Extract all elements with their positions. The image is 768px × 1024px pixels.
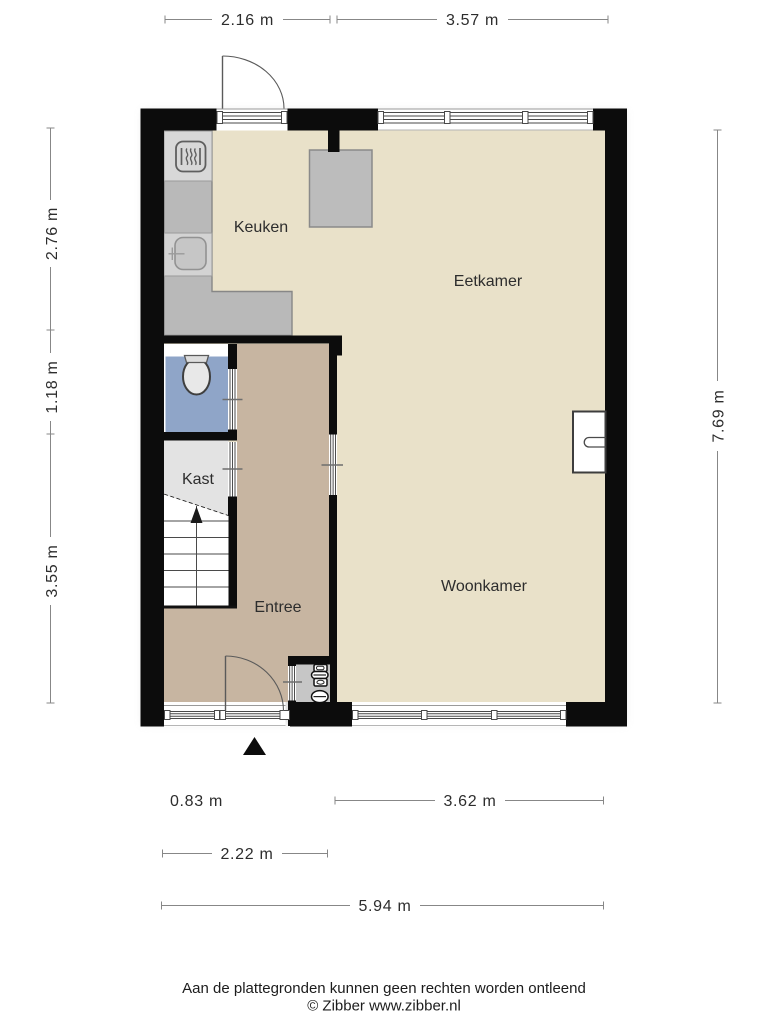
svg-text:Entree: Entree <box>254 599 301 616</box>
svg-text:3.62 m: 3.62 m <box>443 793 496 810</box>
svg-text:7.69 m: 7.69 m <box>711 389 728 442</box>
svg-text:Kast: Kast <box>182 471 215 488</box>
svg-text:Keuken: Keuken <box>234 219 288 236</box>
svg-text:2.22 m: 2.22 m <box>220 846 273 863</box>
svg-text:5.94 m: 5.94 m <box>358 898 411 915</box>
svg-text:1.18 m: 1.18 m <box>44 360 61 413</box>
svg-text:3.55 m: 3.55 m <box>44 544 61 597</box>
svg-text:0.83 m: 0.83 m <box>170 793 223 810</box>
svg-text:2.16 m: 2.16 m <box>221 12 274 29</box>
svg-text:© Zibber www.zibber.nl: © Zibber www.zibber.nl <box>307 998 461 1015</box>
svg-text:Eetkamer: Eetkamer <box>454 273 523 290</box>
svg-text:2.76 m: 2.76 m <box>44 207 61 260</box>
svg-text:3.57 m: 3.57 m <box>446 12 499 29</box>
svg-text:Aan de plattegronden kunnen ge: Aan de plattegronden kunnen geen rechten… <box>182 980 586 997</box>
svg-text:Woonkamer: Woonkamer <box>441 578 528 595</box>
